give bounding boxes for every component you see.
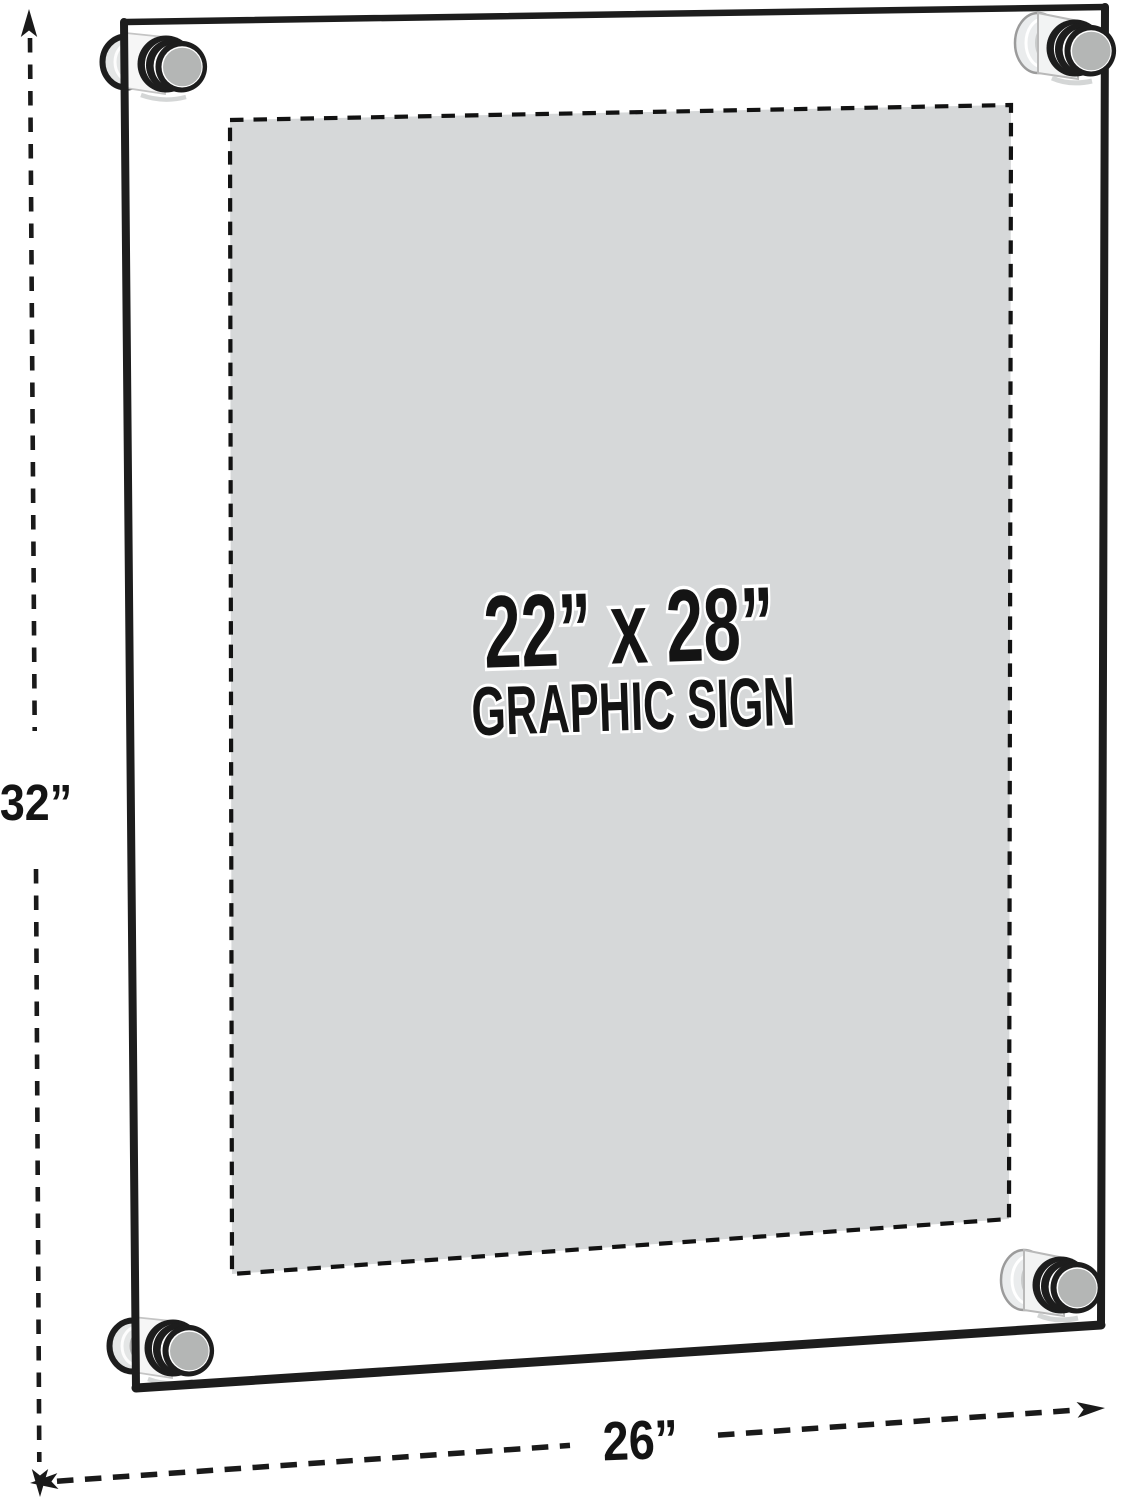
svg-text:32”: 32” <box>0 775 72 831</box>
svg-text:GRAPHIC SIGN: GRAPHIC SIGN <box>470 664 796 751</box>
svg-text:26”: 26” <box>602 1408 679 1472</box>
